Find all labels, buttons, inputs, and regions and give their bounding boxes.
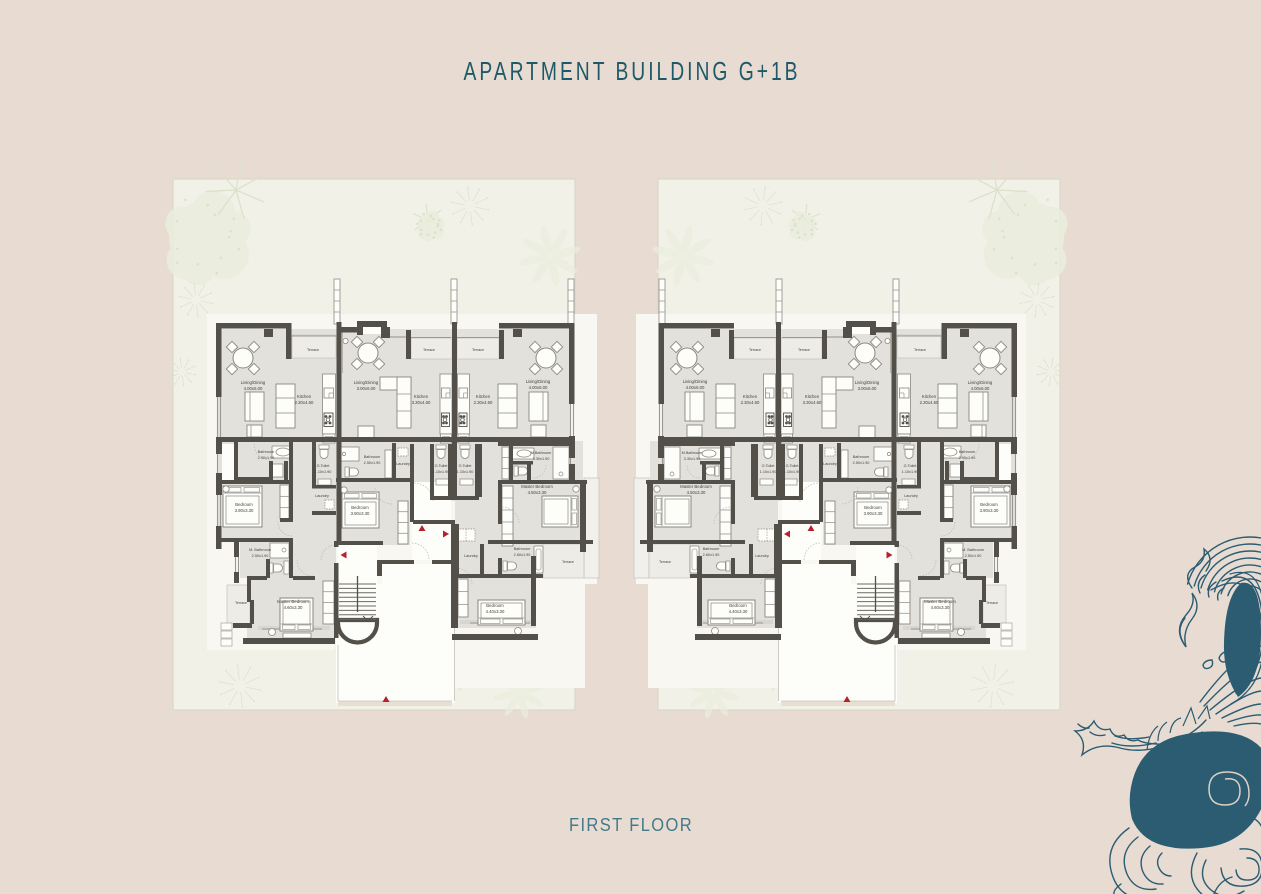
svg-text:Laundry: Laundry: [904, 494, 918, 498]
svg-text:Master Bedroom: Master Bedroom: [924, 599, 956, 604]
svg-text:2.30x4.60: 2.30x4.60: [295, 400, 314, 405]
svg-text:Kitchen: Kitchen: [922, 394, 937, 399]
svg-text:M. Bathroom: M. Bathroom: [249, 548, 271, 552]
svg-text:M.Bathroom: M.Bathroom: [531, 451, 552, 455]
svg-text:1.10x1.90: 1.10x1.90: [433, 470, 450, 474]
svg-text:Laundry: Laundry: [396, 462, 410, 466]
svg-text:2.50x1.90: 2.50x1.90: [853, 461, 870, 465]
svg-text:3.00x6.00: 3.00x6.00: [357, 386, 376, 391]
svg-text:Bathroom: Bathroom: [364, 455, 380, 459]
svg-text:M. Bathroom: M. Bathroom: [962, 548, 984, 552]
svg-text:G.Toilet: G.Toilet: [904, 464, 918, 468]
svg-text:Bathroom: Bathroom: [959, 450, 975, 454]
svg-text:3.30x1.90: 3.30x1.90: [533, 457, 550, 461]
svg-text:Kitchen: Kitchen: [297, 394, 312, 399]
svg-text:2.50x1.90: 2.50x1.90: [252, 554, 269, 558]
svg-text:Terrace: Terrace: [798, 348, 810, 352]
svg-text:4.00x6.00: 4.00x6.00: [529, 385, 548, 390]
svg-text:2.30x4.60: 2.30x4.60: [741, 400, 760, 405]
svg-text:4.40x3.30: 4.40x3.30: [486, 609, 505, 614]
svg-text:Terrace: Terrace: [307, 348, 319, 352]
svg-text:3.90x3.30: 3.90x3.30: [235, 508, 254, 513]
svg-text:Master Bedroom: Master Bedroom: [521, 484, 553, 489]
svg-text:Kitchen: Kitchen: [743, 394, 758, 399]
svg-text:Living/Dining: Living/Dining: [241, 380, 266, 385]
svg-text:3.00x6.00: 3.00x6.00: [858, 386, 877, 391]
svg-text:3.90x3.30: 3.90x3.30: [980, 508, 999, 513]
svg-text:4.00x6.00: 4.00x6.00: [244, 386, 263, 391]
svg-text:FIRST FLOOR: FIRST FLOOR: [569, 815, 693, 835]
svg-text:Living/Dining: Living/Dining: [683, 379, 708, 384]
svg-text:4.60x3.30: 4.60x3.30: [284, 605, 303, 610]
svg-text:4.60x3.30: 4.60x3.30: [931, 605, 950, 610]
svg-text:G.Toilet: G.Toilet: [762, 464, 776, 468]
svg-text:2.30x4.60: 2.30x4.60: [474, 400, 493, 405]
svg-text:2.60x1.90: 2.60x1.90: [514, 553, 531, 557]
svg-text:Bedroom: Bedroom: [235, 502, 253, 507]
svg-text:Terrace: Terrace: [749, 348, 761, 352]
svg-text:3.90x3.30: 3.90x3.30: [864, 511, 883, 516]
svg-text:Terrace: Terrace: [472, 348, 484, 352]
svg-text:Master Bedroom: Master Bedroom: [277, 599, 309, 604]
svg-text:Bedroom: Bedroom: [864, 505, 882, 510]
svg-text:Bathroom: Bathroom: [853, 455, 869, 459]
svg-text:Bedroom: Bedroom: [980, 502, 998, 507]
svg-text:Bathroom: Bathroom: [703, 547, 719, 551]
svg-text:1.10x1.90: 1.10x1.90: [902, 470, 919, 474]
svg-text:G.Toilet: G.Toilet: [317, 464, 331, 468]
svg-text:2.30x4.60: 2.30x4.60: [920, 400, 939, 405]
svg-text:1.10x1.90: 1.10x1.90: [457, 470, 474, 474]
svg-text:Living/Dining: Living/Dining: [855, 380, 880, 385]
svg-text:Bedroom: Bedroom: [486, 603, 504, 608]
svg-text:G.Toilet: G.Toilet: [459, 464, 473, 468]
svg-text:1.10x1.90: 1.10x1.90: [315, 470, 332, 474]
svg-text:3.30x4.60: 3.30x4.60: [803, 400, 822, 405]
svg-text:Laundry: Laundry: [464, 554, 478, 558]
svg-text:Laundry: Laundry: [755, 554, 769, 558]
svg-text:Laundry: Laundry: [823, 462, 837, 466]
svg-text:3.30x1.90: 3.30x1.90: [684, 457, 701, 461]
svg-text:3.30x4.60: 3.30x4.60: [412, 400, 431, 405]
svg-text:Bathroom: Bathroom: [258, 450, 274, 454]
svg-text:1.10x1.90: 1.10x1.90: [784, 470, 801, 474]
svg-text:2.50x1.90: 2.50x1.90: [364, 461, 381, 465]
svg-text:Kitchen: Kitchen: [476, 394, 491, 399]
svg-text:2.60x1.90: 2.60x1.90: [703, 553, 720, 557]
svg-text:Master Bedroom: Master Bedroom: [680, 484, 712, 489]
svg-text:1.10x1.90: 1.10x1.90: [760, 470, 777, 474]
svg-text:G.Toilet: G.Toilet: [435, 464, 449, 468]
svg-text:Kitchen: Kitchen: [414, 394, 429, 399]
svg-text:Bathroom: Bathroom: [514, 547, 530, 551]
svg-text:Terrace: Terrace: [659, 560, 671, 564]
svg-text:2.90x1.90: 2.90x1.90: [258, 456, 275, 460]
svg-text:Terrace: Terrace: [562, 560, 574, 564]
svg-text:Laundry: Laundry: [315, 494, 329, 498]
svg-text:Kitchen: Kitchen: [805, 394, 820, 399]
svg-text:Terrace: Terrace: [914, 348, 926, 352]
svg-text:Terrace: Terrace: [235, 601, 247, 605]
svg-text:Terrace: Terrace: [986, 601, 998, 605]
svg-text:Terrace: Terrace: [423, 348, 435, 352]
svg-text:4.50x3.30: 4.50x3.30: [687, 490, 706, 495]
svg-text:Bedroom: Bedroom: [729, 603, 747, 608]
svg-text:4.00x6.00: 4.00x6.00: [686, 385, 705, 390]
svg-text:M.Bathroom: M.Bathroom: [682, 451, 703, 455]
svg-text:Living/Dining: Living/Dining: [354, 380, 379, 385]
svg-text:4.00x6.00: 4.00x6.00: [971, 386, 990, 391]
svg-text:2.50x1.90: 2.50x1.90: [965, 554, 982, 558]
svg-text:Living/Dining: Living/Dining: [526, 379, 551, 384]
svg-text:3.90x3.30: 3.90x3.30: [351, 511, 370, 516]
svg-text:Living/Dining: Living/Dining: [968, 380, 993, 385]
svg-text:Bedroom: Bedroom: [351, 505, 369, 510]
svg-text:4.40x3.30: 4.40x3.30: [729, 609, 748, 614]
svg-text:APARTMENT BUILDING G+1B: APARTMENT BUILDING G+1B: [464, 56, 801, 86]
svg-text:G.Toilet: G.Toilet: [786, 464, 800, 468]
svg-text:2.90x1.90: 2.90x1.90: [959, 456, 976, 460]
svg-text:4.50x3.30: 4.50x3.30: [528, 490, 547, 495]
